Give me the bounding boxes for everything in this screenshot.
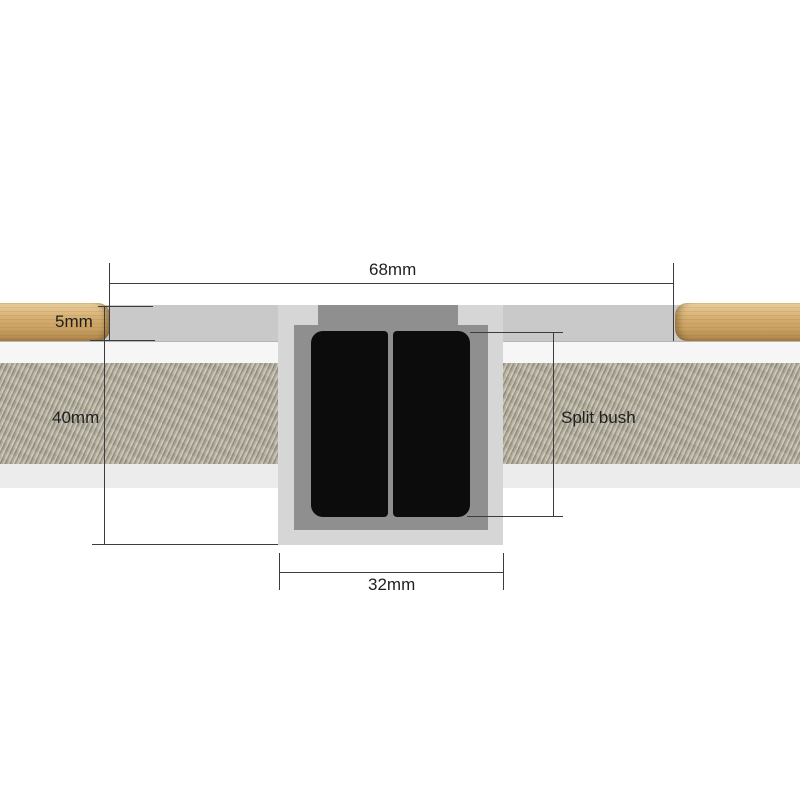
split-bush-left-half: [311, 331, 388, 517]
extension-line-68mm-right: [673, 263, 674, 341]
dimension-line-40mm: [104, 306, 105, 544]
tick-5mm-top: [98, 306, 153, 307]
bush-housing-tab: [318, 305, 458, 326]
extension-line-68mm-left: [109, 263, 110, 341]
timber-lath-right: [675, 303, 800, 341]
callout-label-split-bush: Split bush: [561, 409, 636, 426]
tick-32mm-right: [503, 553, 504, 590]
diagram-canvas: 68mm 5mm 40mm Split bush 32mm: [0, 0, 800, 800]
callout-line-bottom: [467, 516, 563, 517]
dimension-label-5mm: 5mm: [55, 313, 93, 330]
dimension-label-32mm: 32mm: [368, 576, 415, 593]
tick-40mm-bottom: [92, 544, 278, 545]
callout-line-top: [470, 332, 563, 333]
split-bush-right-half: [393, 331, 470, 517]
dimension-line-32mm: [279, 572, 504, 573]
tick-5mm-bottom: [90, 340, 155, 341]
tick-32mm-left: [279, 553, 280, 590]
dimension-line-68mm: [109, 283, 673, 284]
dimension-label-68mm: 68mm: [369, 261, 416, 278]
dimension-label-40mm: 40mm: [52, 409, 99, 426]
callout-line-vertical: [553, 332, 554, 517]
